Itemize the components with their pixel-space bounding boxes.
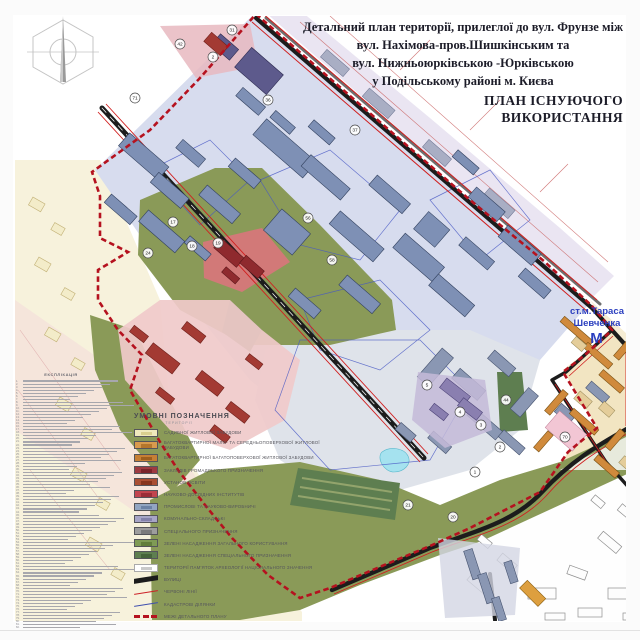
legend-label: ЗАКЛАДІВ ГРОМАДСЬКОГО ПРИЗНАЧЕННЯ [164,468,263,473]
legend-title: УМОВНІ ПОЗНАЧЕННЯ [134,413,339,420]
legend-label: КАДАСТРОВІ ДІЛЯНКИ [164,602,216,607]
map-circle-number: 58 [329,258,335,264]
legend-label: САДИБНОЇ ЖИТЛОВОЇ ЗАБУДОВИ [164,430,242,435]
legend-item: ЗЕЛЕНІ НАСАДЖЕННЯ СПЕЦІАЛЬНОГО ПРИЗНАЧЕН… [134,551,339,560]
legend-swatch-7 [134,503,158,511]
legend-swatch-5 [134,478,158,486]
legend-item: СПЕЦІАЛЬНОГО ПРИЗНАЧЕННЯ [134,527,339,536]
map-circle-number: 5 [426,383,429,389]
legend-swatch-8 [134,515,158,523]
plan-heading-line-1: ПЛАН ІСНУЮЧОГО [484,92,623,109]
legend-label: КОМУНАЛЬНО-СКЛАДСЬКІ [164,516,225,521]
map-circle-number: 2 [499,445,502,451]
legend-item: КОМУНАЛЬНО-СКЛАДСЬКІ [134,514,339,523]
legend-label: МЕЖІ ДЕТАЛЬНОГО ПЛАНУ [164,614,227,619]
title-line-4: у Подільському районі м. Києва [296,72,630,90]
legend-label: БАГАТОКВАРТИРНОЇ БАГАТОПОВЕРХОВОЇ ЖИТЛОВ… [164,455,314,460]
legend-label: ЗЕЛЕНІ НАСАДЖЕННЯ ЗАГАЛЬНОГО КОРИСТУВАНН… [164,541,288,546]
title-line-3: вул. Нижньоюрківською -Юрківською [296,54,630,72]
map-circle-number: 19 [215,241,221,247]
explication-list: ЕКСПЛІКАЦІЯ 1.2.3.4.5.6.7.8.9.10.11.12.1… [16,372,134,629]
map-circle-number: 24 [145,251,151,257]
map-circle-number: 70 [562,435,568,441]
map-circle-number: 71 [132,96,138,102]
legend-item: НАУКОВО-ДОСЛІДНИХ ІНСТИТУТІВ [134,490,339,499]
metro-m-icon: М [552,333,640,345]
legend-item: САДИБНОЇ ЖИТЛОВОЇ ЗАБУДОВИ [134,428,339,437]
map-circle-number: 21 [405,503,411,509]
map-circle-number: 44 [503,398,509,404]
metro-name-line-1: ст.м.Тараса [552,306,640,318]
legend-swatch-15 [134,600,158,608]
legend-label: ЧЕРВОНІ ЛІНІЇ [164,589,197,594]
legend-item: ТЕРИТОРІЇ ПАМ'ЯТОК АРХЕОЛОГІЇ НАЦІОНАЛЬН… [134,563,339,572]
legend-item: УСТАНОВ ОСВІТИ [134,478,339,487]
legend-label: БАГАТОКВАРТИРНОЇ МАЛО- ТА СЕРЕДНЬОПОВЕРХ… [164,440,339,450]
plan-sheet: 713142236375617192418585444321212070 Дет… [0,0,640,640]
metro-station-label: ст.м.Тараса Шевченка М [552,306,640,345]
legend-swatch-10 [134,539,158,547]
map-circle-number: 42 [177,42,183,48]
legend-swatch-3 [134,454,158,462]
legend-label: ПРОМИСЛОВІ ТА НАУКОВО-ВИРОБНИЧІ [164,504,256,509]
legend-swatch-14 [134,588,158,596]
legend-item: ВУЛИЦІ [134,575,339,584]
legend-swatch-16 [134,612,158,620]
legend-item: БАГАТОКВАРТИРНОЇ БАГАТОПОВЕРХОВОЇ ЖИТЛОВ… [134,453,339,462]
map-circle-number: 2 [212,55,215,61]
legend-label: СПЕЦІАЛЬНОГО ПРИЗНАЧЕННЯ [164,529,238,534]
plan-heading: ПЛАН ІСНУЮЧОГО ВИКОРИСТАННЯ [484,92,623,126]
legend-swatch-9 [134,527,158,535]
legend-item: КАДАСТРОВІ ДІЛЯНКИ [134,600,339,609]
legend-label: ТЕРИТОРІЇ ПАМ'ЯТОК АРХЕОЛОГІЇ НАЦІОНАЛЬН… [164,565,312,570]
map-circle-number: 4 [459,410,462,416]
map-circle-number: 56 [305,216,311,222]
map-circle-number: 3 [480,423,483,429]
metro-name-line-2: Шевченка [552,318,640,330]
legend-item: БАГАТОКВАРТИРНОЇ МАЛО- ТА СЕРЕДНЬОПОВЕРХ… [134,440,339,450]
legend-swatch-1 [134,429,158,437]
legend-item: ЗАКЛАДІВ ГРОМАДСЬКОГО ПРИЗНАЧЕННЯ [134,466,339,475]
legend-item: ЗЕЛЕНІ НАСАДЖЕННЯ ЗАГАЛЬНОГО КОРИСТУВАНН… [134,539,339,548]
map-circle-number: 36 [265,98,271,104]
legend-swatch-13 [134,576,158,584]
legend-label: ВУЛИЦІ [164,577,181,582]
explication-line: 82. [16,626,134,629]
legend-label: ЗЕЛЕНІ НАСАДЖЕННЯ СПЕЦІАЛЬНОГО ПРИЗНАЧЕН… [164,553,291,558]
legend-item: ПРОМИСЛОВІ ТА НАУКОВО-ВИРОБНИЧІ [134,502,339,511]
north-compass-icon [27,16,99,84]
legend-label: УСТАНОВ ОСВІТИ [164,480,205,485]
legend-swatch-12 [134,564,158,572]
legend: УМОВНІ ПОЗНАЧЕННЯ ТЕРИТОРІЇ САДИБНОЇ ЖИТ… [134,413,339,624]
map-circle-number: 37 [352,128,358,134]
map-circle-number: 1 [474,470,477,476]
sheet-bottom-edge [0,630,640,631]
legend-swatch-4 [134,466,158,474]
legend-label: НАУКОВО-ДОСЛІДНИХ ІНСТИТУТІВ [164,492,244,497]
title-block: Детальний план території, прилеглої до в… [296,18,630,90]
explication-title: ЕКСПЛІКАЦІЯ [16,372,106,377]
map-circle-number: 31 [229,28,235,34]
title-line-2: вул. Нахімова-пров.Шишкінським та [296,36,630,54]
legend-item: МЕЖІ ДЕТАЛЬНОГО ПЛАНУ [134,612,339,621]
legend-swatch-6 [134,490,158,498]
title-line-1: Детальний план території, прилеглої до в… [296,18,630,36]
map-circle-number: 17 [170,220,176,226]
legend-item: ЧЕРВОНІ ЛІНІЇ [134,587,339,596]
legend-swatch-2 [134,441,158,449]
legend-swatch-11 [134,551,158,559]
legend-subtitle: ТЕРИТОРІЇ [134,421,224,425]
plan-heading-line-2: ВИКОРИСТАННЯ [484,109,623,126]
map-circle-number: 18 [189,244,195,250]
map-circle-number: 20 [450,515,456,521]
